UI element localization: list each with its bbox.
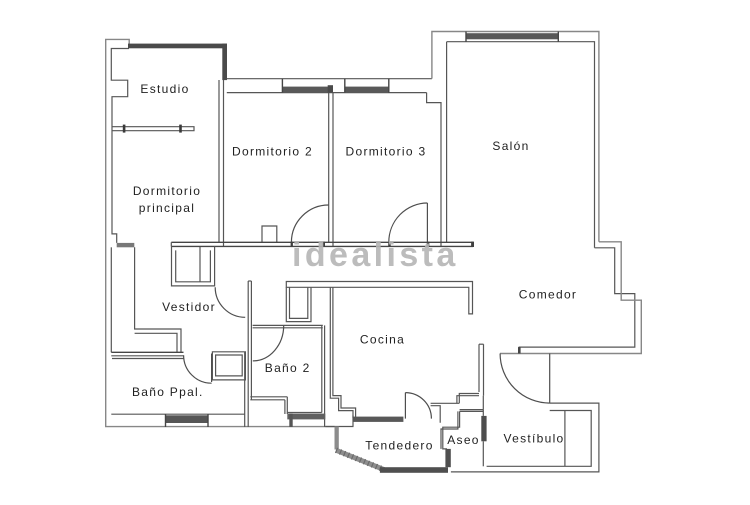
svg-text:Vestíbulo: Vestíbulo: [503, 432, 564, 446]
svg-text:Salón: Salón: [492, 139, 529, 153]
svg-text:Tendedero: Tendedero: [365, 439, 433, 453]
svg-text:Estudio: Estudio: [140, 82, 189, 96]
svg-text:Dormitorio 2: Dormitorio 2: [232, 145, 313, 159]
svg-text:Dormitorio: Dormitorio: [133, 184, 201, 198]
svg-text:principal: principal: [139, 201, 195, 215]
svg-text:Cocina: Cocina: [360, 333, 405, 347]
svg-text:Comedor: Comedor: [519, 288, 577, 302]
svg-text:Vestidor: Vestidor: [162, 300, 216, 314]
svg-text:idealista: idealista: [292, 236, 459, 274]
svg-text:Aseo: Aseo: [447, 433, 480, 447]
svg-text:Dormitorio 3: Dormitorio 3: [346, 145, 427, 159]
svg-text:Baño 2: Baño 2: [265, 361, 311, 375]
svg-text:Baño Ppal.: Baño Ppal.: [132, 385, 204, 399]
